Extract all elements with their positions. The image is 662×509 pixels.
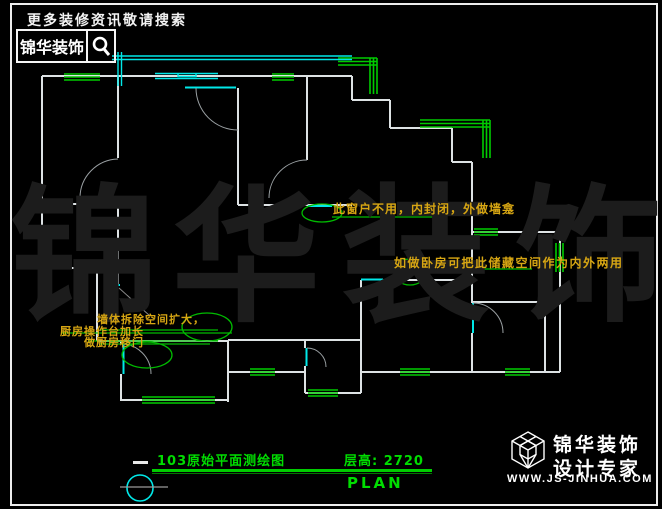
footer-website-url: WWW.JS-JINHUA.COM: [507, 473, 653, 485]
balcony-rail-vertical: [118, 52, 122, 86]
brand-name: 锦华装饰: [18, 31, 86, 61]
annotation-kitchen-note-line3: 做厨房移门: [84, 334, 144, 350]
annotation-storage-note: 如做卧房可把此储藏空间作为内外两用: [394, 254, 624, 271]
footer-brand-name: 锦华装饰: [553, 430, 641, 457]
brand-search-box: 锦华装饰: [16, 29, 116, 63]
plan-label: PLAN: [347, 474, 404, 492]
section-mark-circle: [127, 475, 153, 501]
search-hint-text: 更多装修资讯敬请搜索: [27, 10, 187, 30]
annotation-window-note: 此窗户不用，内封闭，外做墙龛: [333, 200, 515, 217]
search-icon: [88, 31, 114, 61]
balcony-rail-horizontal: [112, 56, 352, 60]
floor-height-label: 层高: 2720: [344, 450, 424, 469]
watermark-char: 华: [172, 182, 320, 330]
watermark-char: 锦: [10, 182, 158, 330]
drawing-title: 103原始平面测绘图: [157, 450, 285, 469]
cad-drawing-canvas: 更多装修资讯敬请搜索 锦华装饰 锦 华 装 饰 此窗户不用，内封闭，外做墙龛 如…: [0, 0, 662, 509]
company-cube-logo-icon: [507, 429, 549, 475]
